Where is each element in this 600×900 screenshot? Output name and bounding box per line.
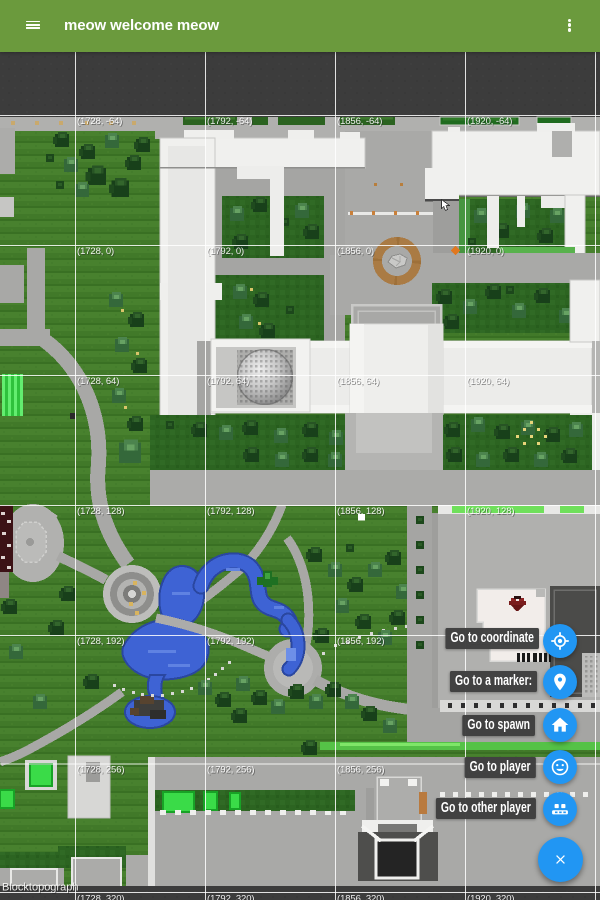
svg-text:(1920, 0): (1920, 0) (467, 246, 504, 257)
svg-text:(1920, 128): (1920, 128) (467, 506, 515, 517)
svg-text:(1728, 0): (1728, 0) (77, 246, 114, 257)
svg-text:(1856, 64): (1856, 64) (337, 376, 379, 387)
svg-text:(1728, 64): (1728, 64) (77, 376, 119, 387)
svg-text:(1920, -64): (1920, -64) (467, 116, 512, 127)
svg-text:(1728, 128): (1728, 128) (77, 506, 125, 517)
svg-text:(1792, 192): (1792, 192) (207, 636, 255, 647)
svg-text:(1728, 192): (1728, 192) (77, 636, 125, 647)
svg-text:(1792, 256): (1792, 256) (207, 765, 255, 776)
svg-text:(1728, -64): (1728, -64) (77, 116, 122, 127)
svg-text:(1792, 128): (1792, 128) (207, 506, 255, 517)
svg-text:(1920, 320): (1920, 320) (467, 894, 515, 900)
svg-text:(1856, 0): (1856, 0) (337, 246, 374, 257)
svg-text:(1856, -64): (1856, -64) (337, 116, 382, 127)
svg-text:(1792, 320): (1792, 320) (207, 894, 255, 900)
svg-text:(1856, 256): (1856, 256) (337, 765, 385, 776)
svg-text:Blocktopograph: Blocktopograph (2, 882, 78, 894)
svg-text:(1856, 192): (1856, 192) (337, 636, 385, 647)
svg-text:(1728, 320): (1728, 320) (77, 894, 125, 900)
svg-text:(1792, 64): (1792, 64) (207, 376, 249, 387)
svg-text:(1728, 256): (1728, 256) (77, 765, 125, 776)
svg-text:(1792, -64): (1792, -64) (207, 116, 252, 127)
svg-text:(1792, 0): (1792, 0) (207, 246, 244, 257)
svg-text:(1920, 64): (1920, 64) (467, 376, 509, 387)
svg-text:(1856, 320): (1856, 320) (337, 894, 385, 900)
